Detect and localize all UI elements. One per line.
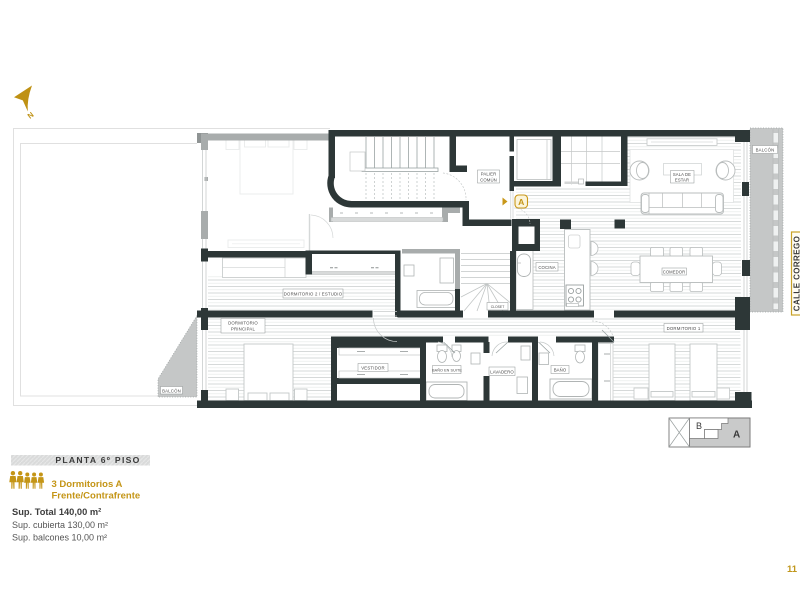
svg-text:BAÑO EN SUITE: BAÑO EN SUITE [432, 367, 462, 372]
svg-text:COCINA: COCINA [538, 265, 555, 270]
svg-text:Frente/Contrafrente: Frente/Contrafrente [52, 491, 141, 502]
svg-text:ESTAR: ESTAR [675, 177, 689, 182]
svg-text:COMEDOR: COMEDOR [663, 269, 686, 274]
svg-text:BALCÓN: BALCÓN [162, 388, 181, 393]
svg-text:CLOSET: CLOSET [491, 305, 505, 309]
svg-text:VESTIDOR: VESTIDOR [361, 366, 385, 371]
svg-text:A: A [733, 430, 740, 441]
svg-text:3 Dormitorios A: 3 Dormitorios A [52, 479, 123, 490]
svg-text:11: 11 [787, 564, 798, 575]
svg-text:CALLE CORREGO: CALLE CORREGO [793, 236, 800, 311]
svg-text:DORMITORIO 2 / ESTUDIO: DORMITORIO 2 / ESTUDIO [284, 292, 343, 297]
svg-text:PRINCIPAL: PRINCIPAL [231, 327, 256, 332]
svg-text:DORMITORIO 1: DORMITORIO 1 [667, 326, 701, 331]
svg-text:LAVADERO: LAVADERO [490, 369, 514, 374]
svg-text:BALCÓN: BALCÓN [756, 148, 775, 153]
svg-text:DORMITORIO: DORMITORIO [228, 321, 258, 326]
svg-text:A: A [518, 197, 524, 207]
svg-text:COMÚN: COMÚN [480, 177, 497, 182]
svg-text:SALA DE: SALA DE [673, 172, 691, 177]
svg-text:B: B [696, 421, 702, 431]
svg-text:PALIER: PALIER [481, 172, 497, 177]
svg-text:Sup. cubierta 130,00 m²: Sup. cubierta 130,00 m² [12, 520, 108, 530]
svg-text:Sup. Total 140,00 m²: Sup. Total 140,00 m² [12, 507, 101, 517]
svg-text:Sup. balcones 10,00 m²: Sup. balcones 10,00 m² [12, 533, 107, 543]
svg-text:PLANTA 6º PISO: PLANTA 6º PISO [55, 455, 140, 465]
svg-text:BAÑO: BAÑO [554, 367, 567, 372]
